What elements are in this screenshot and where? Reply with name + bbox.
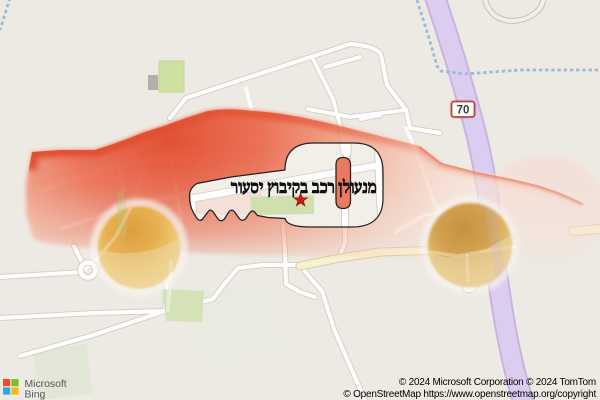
svg-text:© OpenStreetMap https://www.op: © OpenStreetMap https://www.openstreetma… [343,389,596,400]
svg-text:70: 70 [457,105,470,117]
svg-text:© 2024 Microsoft Corporation ©: © 2024 Microsoft Corporation © 2024 TomT… [399,377,596,388]
svg-text:Microsoft: Microsoft [25,379,67,390]
svg-text:Bing: Bing [25,390,46,400]
